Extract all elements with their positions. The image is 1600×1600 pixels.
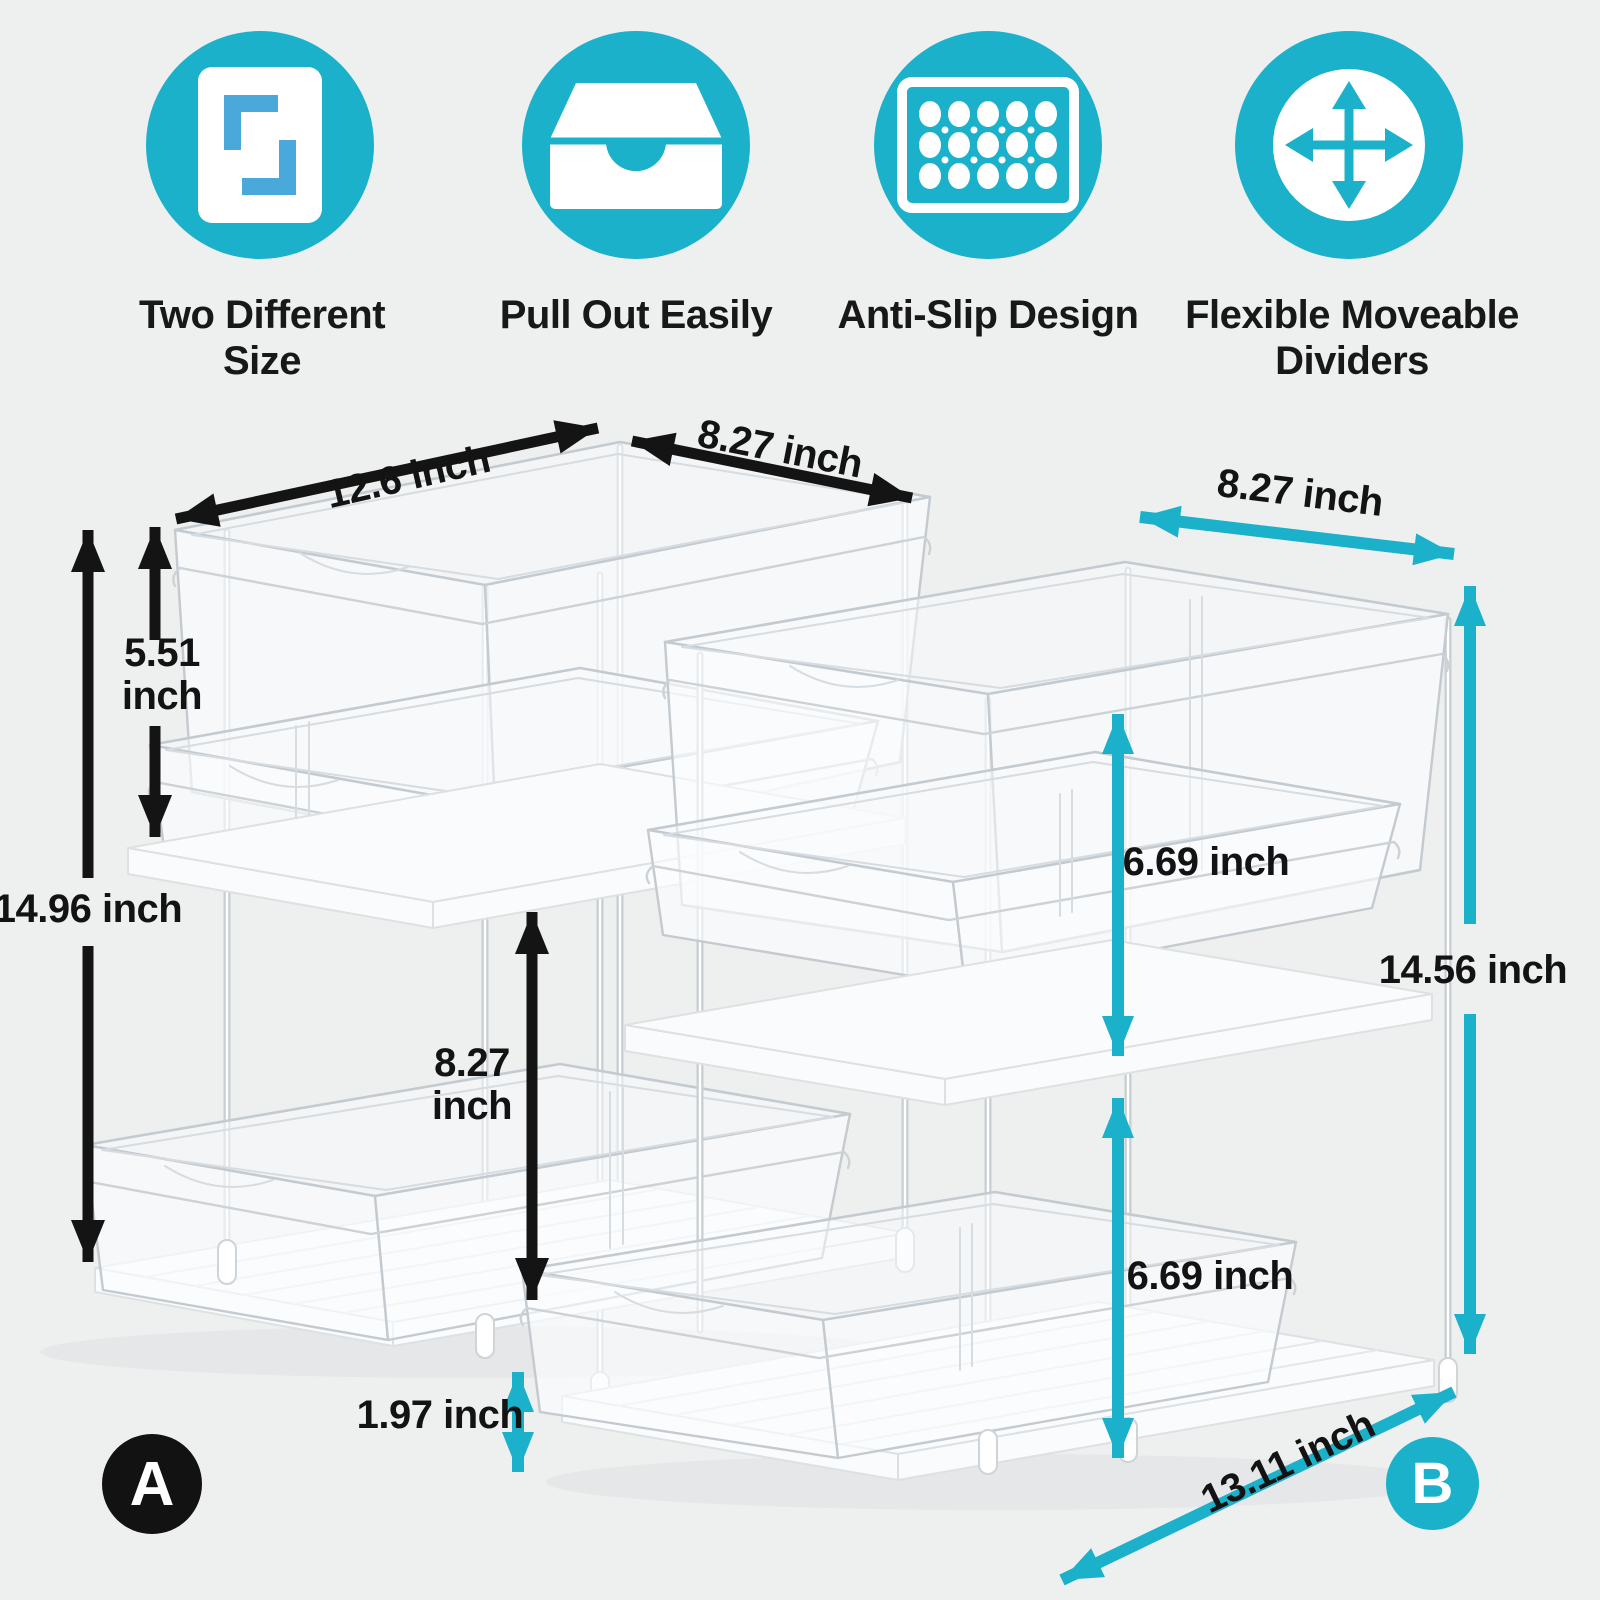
dim-b-total-height-label: 14.56 inch <box>1363 949 1583 992</box>
unit-a-badge: A <box>102 1434 202 1534</box>
b-middle-shelf <box>625 940 1432 1105</box>
dim-a-total-height-label: 14.96 inch <box>0 888 188 931</box>
unit-b-badge: B <box>1386 1437 1479 1530</box>
anti-slip-icon <box>874 31 1102 259</box>
b-foot <box>979 1430 997 1474</box>
dim-a-tray-height-label: 1.97 inch <box>350 1394 530 1437</box>
unit-a-badge-letter: A <box>130 1449 175 1520</box>
move-dividers-icon <box>1235 31 1463 259</box>
dim-b-bottom-tier-label: 6.69 inch <box>1110 1255 1310 1298</box>
dim-a-top-tier-label: 5.51 inch <box>107 632 217 718</box>
unit-b-badge-letter: B <box>1412 1450 1454 1517</box>
feature-label-two-size: Two Different Size <box>112 292 412 384</box>
move-dividers-glyph <box>1235 31 1463 259</box>
arrow-b-depth <box>1140 517 1454 554</box>
product-infographic: Two Different Size Pull Out Easily Anti-… <box>0 0 1600 1600</box>
anti-slip-glyph <box>874 31 1102 259</box>
feature-label-pull-out: Pull Out Easily <box>436 292 836 338</box>
pull-out-icon <box>522 31 750 259</box>
a-foot <box>218 1240 236 1284</box>
feature-label-move-dividers: Flexible Moveable Dividers <box>1152 292 1552 384</box>
dim-a-bottom-tier-label: 8.27 inch <box>417 1042 527 1128</box>
dim-b-top-tier-label: 6.69 inch <box>1106 841 1306 884</box>
feature-label-anti-slip: Anti-Slip Design <box>788 292 1188 338</box>
pull-out-glyph <box>522 31 750 259</box>
two-size-icon <box>146 31 374 259</box>
a-foot <box>476 1314 494 1358</box>
two-size-glyph <box>146 31 374 259</box>
